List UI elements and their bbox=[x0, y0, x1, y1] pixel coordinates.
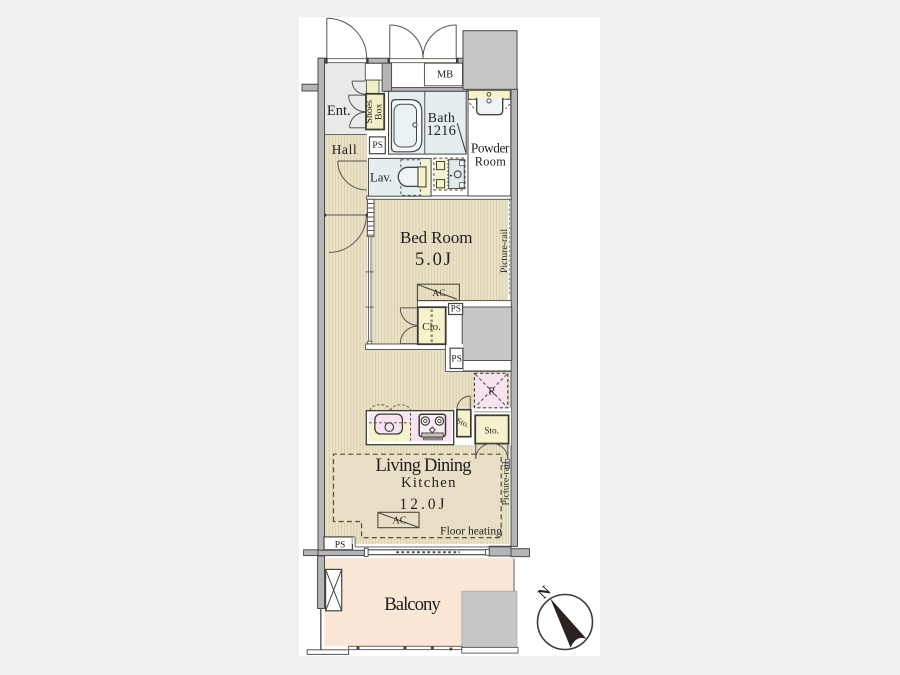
svg-text:Picture-rail: Picture-rail bbox=[501, 461, 512, 505]
svg-text:Living Dining: Living Dining bbox=[376, 456, 472, 476]
svg-text:PS: PS bbox=[335, 540, 346, 550]
svg-text:MB: MB bbox=[437, 70, 453, 81]
svg-text:Floor heating: Floor heating bbox=[440, 526, 502, 538]
svg-text:AC: AC bbox=[393, 516, 407, 527]
svg-text:Picture-rail: Picture-rail bbox=[499, 229, 510, 273]
svg-text:AC: AC bbox=[432, 289, 445, 299]
svg-text:Room: Room bbox=[475, 154, 506, 168]
svg-text:Lav.: Lav. bbox=[370, 170, 392, 184]
svg-text:1216: 1216 bbox=[426, 123, 456, 139]
svg-text:Clo.: Clo. bbox=[422, 321, 441, 333]
svg-text:R: R bbox=[488, 386, 495, 397]
svg-text:Bed Room: Bed Room bbox=[400, 228, 473, 247]
svg-text:Balcony: Balcony bbox=[384, 594, 441, 615]
svg-text:Hall: Hall bbox=[332, 142, 357, 157]
svg-text:Sto.: Sto. bbox=[484, 425, 499, 435]
svg-text:PS: PS bbox=[372, 141, 383, 151]
svg-text:5.0J: 5.0J bbox=[415, 250, 451, 270]
svg-text:Ent.: Ent. bbox=[327, 103, 351, 119]
svg-text:Kitchen: Kitchen bbox=[401, 475, 456, 491]
svg-text:PS: PS bbox=[451, 305, 461, 315]
svg-text:Powder: Powder bbox=[471, 141, 510, 156]
svg-text:PS: PS bbox=[451, 355, 461, 365]
svg-text:12.0J: 12.0J bbox=[400, 496, 445, 513]
